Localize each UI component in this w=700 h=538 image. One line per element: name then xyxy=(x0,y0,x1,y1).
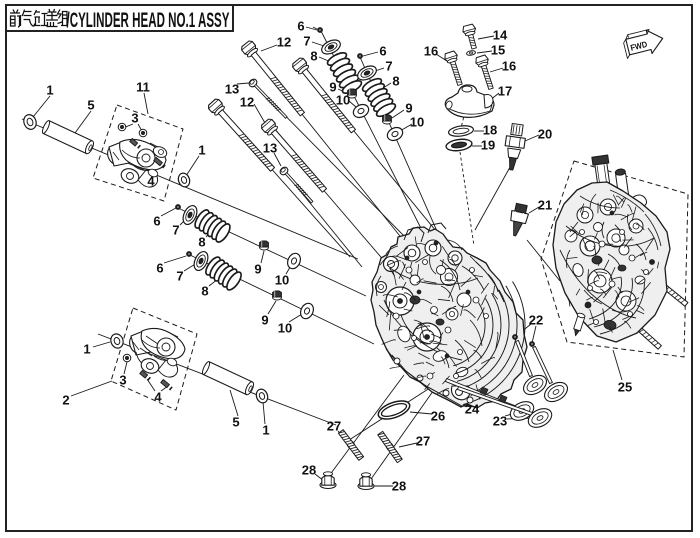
svg-text:24: 24 xyxy=(465,402,480,417)
svg-text:6: 6 xyxy=(153,214,160,229)
svg-text:9: 9 xyxy=(261,313,268,328)
svg-text:1: 1 xyxy=(46,83,53,98)
svg-text:5: 5 xyxy=(232,415,239,430)
svg-text:7: 7 xyxy=(303,34,310,49)
svg-text:18: 18 xyxy=(483,123,497,138)
svg-text:21: 21 xyxy=(538,198,552,213)
svg-text:14: 14 xyxy=(493,28,508,43)
svg-text:17: 17 xyxy=(498,84,512,99)
svg-text:13: 13 xyxy=(263,141,277,156)
svg-text:16: 16 xyxy=(424,44,438,59)
svg-text:28: 28 xyxy=(392,479,406,494)
svg-text:7: 7 xyxy=(176,269,183,284)
svg-text:9: 9 xyxy=(254,262,261,277)
svg-text:9: 9 xyxy=(405,101,412,116)
svg-text:4: 4 xyxy=(147,174,155,189)
svg-text:8: 8 xyxy=(201,284,208,299)
svg-text:27: 27 xyxy=(327,419,341,434)
svg-text:1: 1 xyxy=(262,423,269,438)
svg-text:10: 10 xyxy=(336,93,350,108)
svg-text:7: 7 xyxy=(172,223,179,238)
svg-text:11: 11 xyxy=(136,80,150,95)
svg-text:12: 12 xyxy=(277,35,291,50)
svg-text:16: 16 xyxy=(502,59,516,74)
svg-text:19: 19 xyxy=(481,138,495,153)
svg-text:8: 8 xyxy=(198,235,205,250)
svg-text:28: 28 xyxy=(302,463,316,478)
svg-text:/CYLINDER HEAD NO.1 ASSY: /CYLINDER HEAD NO.1 ASSY xyxy=(67,9,230,32)
svg-text:13: 13 xyxy=(225,82,239,97)
svg-text:3: 3 xyxy=(131,111,138,126)
svg-text:10: 10 xyxy=(410,115,424,130)
svg-text:26: 26 xyxy=(431,409,445,424)
svg-text:8: 8 xyxy=(392,74,399,89)
svg-text:3: 3 xyxy=(119,373,126,388)
svg-text:4: 4 xyxy=(154,390,162,405)
svg-text:12: 12 xyxy=(240,95,254,110)
svg-text:15: 15 xyxy=(491,43,505,58)
svg-text:27: 27 xyxy=(416,434,430,449)
svg-text:5: 5 xyxy=(87,98,94,113)
svg-text:10: 10 xyxy=(278,321,292,336)
svg-text:25: 25 xyxy=(618,380,632,395)
svg-text:10: 10 xyxy=(275,273,289,288)
svg-text:23: 23 xyxy=(493,414,507,429)
svg-text:22: 22 xyxy=(529,313,543,328)
svg-text:8: 8 xyxy=(310,49,317,64)
svg-text:6: 6 xyxy=(379,44,386,59)
svg-text:7: 7 xyxy=(385,59,392,74)
svg-text:1: 1 xyxy=(198,143,205,158)
svg-text:20: 20 xyxy=(538,127,552,142)
svg-text:2: 2 xyxy=(62,393,69,408)
svg-text:6: 6 xyxy=(297,19,304,34)
svg-text:1: 1 xyxy=(83,342,90,357)
svg-text:6: 6 xyxy=(156,261,163,276)
